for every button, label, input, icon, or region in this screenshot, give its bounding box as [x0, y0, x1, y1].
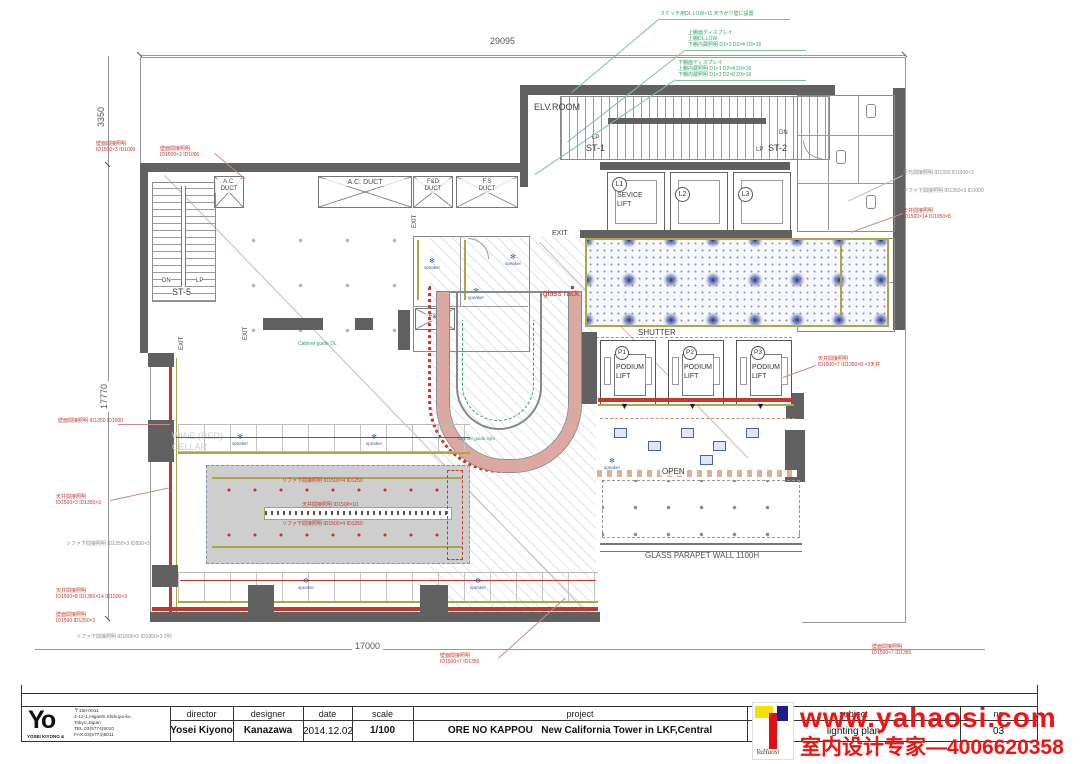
carpet-border	[840, 244, 842, 316]
annotation: counter guide light	[458, 436, 495, 442]
duct-fs: F.SDUCT	[456, 176, 518, 208]
podium-p1-tag: P1	[615, 346, 629, 360]
stair-label-lp5: LP	[196, 278, 203, 284]
wall-pier	[420, 585, 448, 622]
table-band-bottom	[178, 572, 598, 602]
wall-top-stair	[520, 85, 835, 95]
olive-line	[178, 452, 470, 454]
dim-top: 29095	[487, 36, 518, 46]
lift-l3-tag: L3	[738, 187, 753, 202]
watermark-logo-redbar	[769, 713, 777, 749]
parapet-label: GLASS PARAPET WALL 1100H	[645, 551, 759, 560]
leader-line	[110, 488, 169, 501]
podium-lift-p2: P2 PODIUM LIFT	[668, 340, 724, 406]
leader-line	[686, 50, 806, 51]
podium-slot	[604, 357, 611, 385]
podium-lift-p1: P1 PODIUM LIFT	[600, 340, 656, 406]
wall-bottom	[150, 612, 600, 622]
bottom-wall-red	[152, 607, 598, 611]
left-lower-wall-line	[150, 353, 151, 620]
podium-p3-tag: P3	[751, 346, 765, 360]
duct-fs-label: F.SDUCT	[457, 179, 517, 193]
annotation: 天井間接照明 ID1500×3 ID1350×3	[56, 494, 101, 506]
speaker-icon: ✻speaker	[604, 458, 620, 470]
lift-l3: L3	[733, 172, 791, 232]
bar-guide-arc	[462, 320, 534, 421]
table-icon	[614, 428, 627, 438]
lift-triangle-icon: ▼	[688, 402, 697, 411]
watermark-logo-navy	[777, 706, 788, 721]
tb-designer-value: Kanazawa	[233, 725, 303, 736]
right-rooms	[797, 95, 895, 232]
annotation: 天井間接照明 ID1500×14 ID1050×8	[903, 208, 951, 220]
table-icon	[713, 441, 726, 451]
room-label-elv: ELV.ROOM	[534, 102, 580, 112]
plan-boundary-right	[905, 57, 906, 622]
stair-landing-wall	[608, 118, 766, 124]
speaker-label: speaker	[232, 441, 248, 446]
annotation: 下棚面ディスプレイ 上棚内蔵照明 D1×1 D2×4 D3×16 下棚内蔵照明 …	[678, 60, 751, 78]
leader-line	[118, 424, 170, 425]
wall-podium-left	[582, 332, 597, 404]
podium-label-2: LIFT	[684, 373, 698, 380]
speaker-icon: ✻speaker	[505, 254, 521, 266]
address-line2: Tokyo,Japan	[74, 721, 101, 726]
speaker-label: speaker	[505, 261, 521, 266]
room-label-st5: ST-5	[172, 287, 191, 297]
podium-slot	[645, 357, 652, 385]
lift-l1: L1 SEVICE LIFT	[607, 172, 665, 232]
fixture	[836, 150, 846, 164]
wall-below-stairs	[600, 162, 790, 170]
fixture	[866, 195, 876, 209]
tb-director-value: Yosei Kiyono	[170, 725, 233, 736]
wall-top-left-band	[140, 163, 520, 172]
table-icon	[746, 428, 759, 438]
annotation: 天井間接照明 ID1500×7 ID1350×8 ×3天井	[818, 356, 880, 368]
wall-pier	[152, 565, 178, 587]
dim-bottom: 17000	[352, 641, 383, 651]
podium-label-1: PODIUM	[752, 364, 780, 371]
table-right-red-box	[447, 470, 463, 560]
duct-ac-small: A.C.DUCT	[214, 176, 244, 208]
speaker-label: speaker	[470, 585, 486, 590]
annotation: ソファ下間接照明 ID1500×4 ID1250	[282, 478, 363, 484]
wall-chunk	[355, 318, 373, 330]
watermark-logo-script: YaHaosi	[756, 748, 779, 756]
annotation: 天井間接照明 ID1500×8 ID1350×14 ID1500×3	[56, 588, 127, 600]
stair-rail	[181, 186, 186, 296]
table-red-line	[176, 437, 470, 438]
tb-project-value: ORE NO KAPPOU New California Tower in LK…	[413, 725, 747, 736]
lift-l1-label-2: LIFT	[617, 201, 631, 208]
speaker-icon: ✻speaker	[298, 578, 314, 590]
annotation: ソファ下間接照明 ID1350×3 ID1000	[903, 188, 984, 194]
podium-slot	[740, 357, 747, 385]
tb-date-label: date	[303, 709, 352, 719]
accent-olive	[417, 240, 419, 300]
wall-pier	[148, 420, 174, 462]
table-center-strip	[264, 507, 452, 520]
duct-ac-small-label: A.C.DUCT	[215, 179, 243, 193]
open-band	[597, 470, 797, 477]
duct-ac-large: A.C. DUCT	[318, 176, 412, 208]
drawing-sheet: 29095 3350 17770 17000 ELV.ROOM LP ST-1 …	[0, 0, 1080, 764]
tb-director-label: director	[170, 709, 233, 719]
duct-fd: F&DDUCT	[413, 176, 453, 208]
dim-left-main: 17770	[99, 381, 109, 412]
podium-p2-tag: P2	[683, 346, 697, 360]
annotation: 壁面間接照明 ID1500×3 ID1000	[160, 146, 199, 158]
annotation: 上棚面ディスプレイ 上棚DL.LOW 下棚内蔵照明 D1×3 D2×4 D3×1…	[688, 30, 761, 48]
exit-label-v1: EXIT	[412, 215, 418, 228]
table-icon	[681, 428, 694, 438]
annotation: スケッチ用DL.LOW×11 天下がり壁に設置	[660, 11, 754, 17]
terrace	[602, 480, 800, 538]
partition	[797, 183, 893, 184]
wall-pier	[248, 585, 274, 622]
table-red-dots	[216, 486, 454, 494]
duct-fd-label: F&DDUCT	[414, 179, 452, 193]
tb-designer-label: designer	[233, 709, 303, 719]
wall-left-upper	[140, 163, 148, 353]
exit-label-center: EXIT	[552, 230, 568, 237]
annotation: 足元間接照明 ID1350 ID1000×3	[903, 170, 974, 176]
podium-label: PODIUM LIFT	[684, 363, 712, 381]
partition	[797, 135, 893, 136]
lift-l1-label: SEVICE LIFT	[617, 191, 643, 209]
table-red-dots	[216, 531, 454, 539]
table-icon	[700, 455, 713, 465]
address-fax: FAX.03(5774)5011	[74, 733, 114, 738]
stair-label-dn5: DN	[162, 278, 171, 284]
table-olive-bottom	[212, 546, 462, 548]
partition	[858, 95, 859, 183]
stair-label-lp2: LP	[756, 147, 763, 153]
lift-triangle-icon: ▼	[620, 402, 629, 411]
address-tel: TEL.03(5774)5010	[74, 727, 114, 732]
annotation: ソファ下間接照明 ID1350×3 ID500×3	[66, 541, 150, 547]
partition	[828, 95, 829, 230]
speaker-icon: ✻speaker	[470, 578, 486, 590]
podium-slot	[781, 357, 788, 385]
annotation: 壁面間接照明 ID1350 ID1000	[58, 418, 123, 424]
annotation: 天井間接照明 ID1500×10	[302, 502, 358, 508]
watermark-url: www.yahaosi.com	[800, 702, 1057, 734]
watermark-logo: YaHaosi	[752, 702, 794, 760]
stair-label-dn: DN	[779, 130, 788, 136]
dining-dash-line	[600, 418, 795, 419]
lift-l2: L2	[670, 172, 728, 232]
room-label-st2: ST-2	[768, 143, 787, 153]
speaker-label: speaker	[424, 265, 440, 270]
wall-chunk	[263, 318, 323, 330]
annotation: ソファ下間接照明 ID1500×4 ID1250	[282, 521, 363, 527]
annotation: Cabinet guide DL	[298, 341, 337, 347]
shutter-line	[596, 337, 792, 338]
logo-mark: Yo	[28, 706, 54, 734]
dim-left-upper: 3350	[96, 104, 106, 130]
annotation: 壁面間接照明 ID1500×3 ID1000	[96, 141, 135, 153]
speaker-icon: ✻speaker	[232, 434, 248, 446]
wall-chunk	[398, 310, 410, 350]
annotation: 壁面間接照明 ID1500×7 ID1350	[872, 644, 911, 656]
table-icon	[648, 441, 661, 451]
plan-boundary-left	[140, 57, 141, 165]
wall-below-lifts	[580, 230, 792, 238]
wall-top-stair-left	[520, 95, 528, 187]
address-line1: 4-12-1,Higashi,Shibuya-ku,	[74, 715, 132, 720]
lift-l1-label-1: SEVICE	[617, 192, 643, 199]
leader-line	[660, 19, 790, 20]
wall-pier	[148, 353, 174, 367]
annotation: 壁面間接照明 ID1500 ID1350×2	[56, 612, 95, 624]
podium-label-2: LIFT	[752, 373, 766, 380]
speaker-label: speaker	[298, 585, 314, 590]
leader-line	[676, 80, 806, 81]
tb-date-value: 2014.12.02	[303, 726, 352, 737]
podium-label-1: PODIUM	[616, 364, 644, 371]
shutter-label: SHUTTER	[636, 328, 678, 337]
speaker-label: speaker	[366, 441, 382, 446]
sheet-frame	[21, 693, 1038, 694]
company-logo: Yo	[28, 706, 54, 735]
tb-scale-label: scale	[352, 709, 413, 719]
exit-label-v3: EXIT	[179, 337, 185, 350]
table-red-line	[180, 580, 596, 581]
podium-label-1: PODIUM	[684, 364, 712, 371]
podium-label: PODIUM LIFT	[752, 363, 780, 381]
exit-label-v2: EXIT	[243, 327, 249, 340]
logo-subtext: YOSEI KIYONO &	[27, 734, 64, 739]
plan-boundary-bottom-right	[802, 622, 906, 623]
lift-l2-tag: L2	[675, 187, 690, 202]
speaker-icon: ✻speaker	[366, 434, 382, 446]
watermark-phone: 室内设计专家—4006620358	[800, 731, 1064, 761]
glass-rack-label: glass rack	[543, 289, 579, 298]
fixture	[866, 104, 876, 118]
annotation: ソファ下間接照明 ID1500×3 ID1950×3 3列	[76, 634, 172, 640]
plan-boundary-top	[140, 57, 905, 58]
podium-slot	[672, 357, 679, 385]
dim-line-bottom	[35, 649, 985, 650]
kitchen-ceiling-grid	[230, 218, 420, 353]
lift-triangle-icon: ▼	[756, 402, 765, 411]
table-band-top	[178, 424, 470, 452]
address-zip: 〒150-0011	[74, 709, 99, 714]
lift-l1-tag: L1	[612, 177, 627, 192]
company-address: 〒150-0011 4-12-1,Higashi,Shibuya-ku, Tok…	[74, 709, 132, 739]
podium-label-2: LIFT	[616, 373, 630, 380]
carpet-pattern	[585, 238, 889, 327]
podium-label: PODIUM LIFT	[616, 363, 644, 381]
annotation: 壁面間接照明 ID1500×7 ID1350	[440, 653, 479, 665]
tb-project-label: project	[413, 709, 747, 719]
room-label-st1: ST-1	[586, 143, 605, 153]
podium-lift-p3: P3 PODIUM LIFT	[736, 340, 792, 406]
duct-ac-large-label: A.C. DUCT	[319, 179, 411, 186]
speaker-icon: ✻speaker	[424, 258, 440, 270]
open-label: OPEN	[660, 467, 687, 476]
tb-scale-value: 1/100	[352, 725, 413, 736]
dim-line-top	[140, 55, 905, 56]
podium-slot	[713, 357, 720, 385]
olive-line	[178, 601, 598, 603]
